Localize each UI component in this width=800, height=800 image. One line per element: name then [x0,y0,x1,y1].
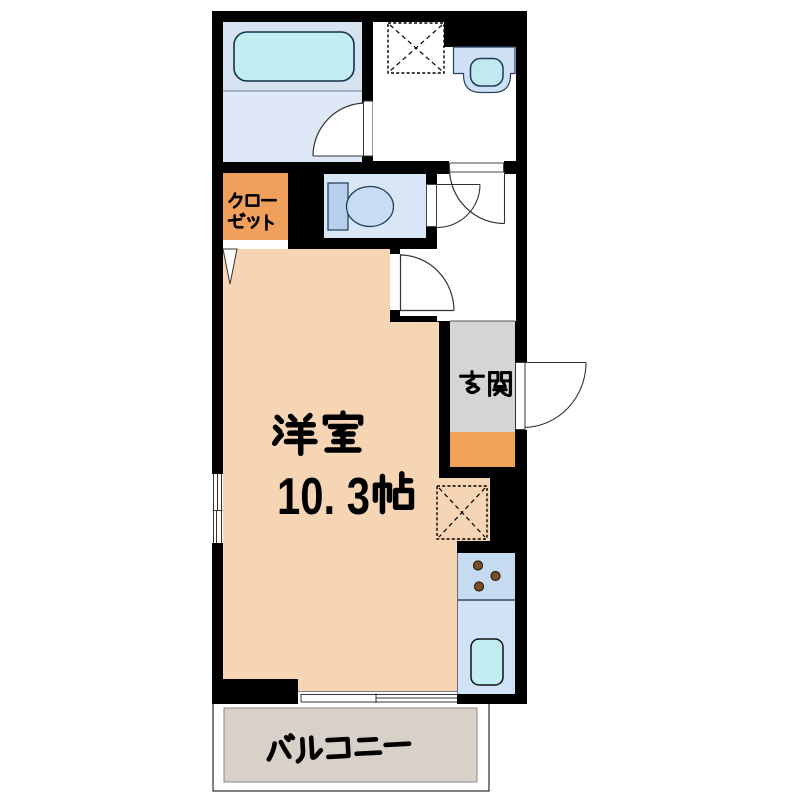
svg-text:10. 3: 10. 3 [277,468,370,526]
